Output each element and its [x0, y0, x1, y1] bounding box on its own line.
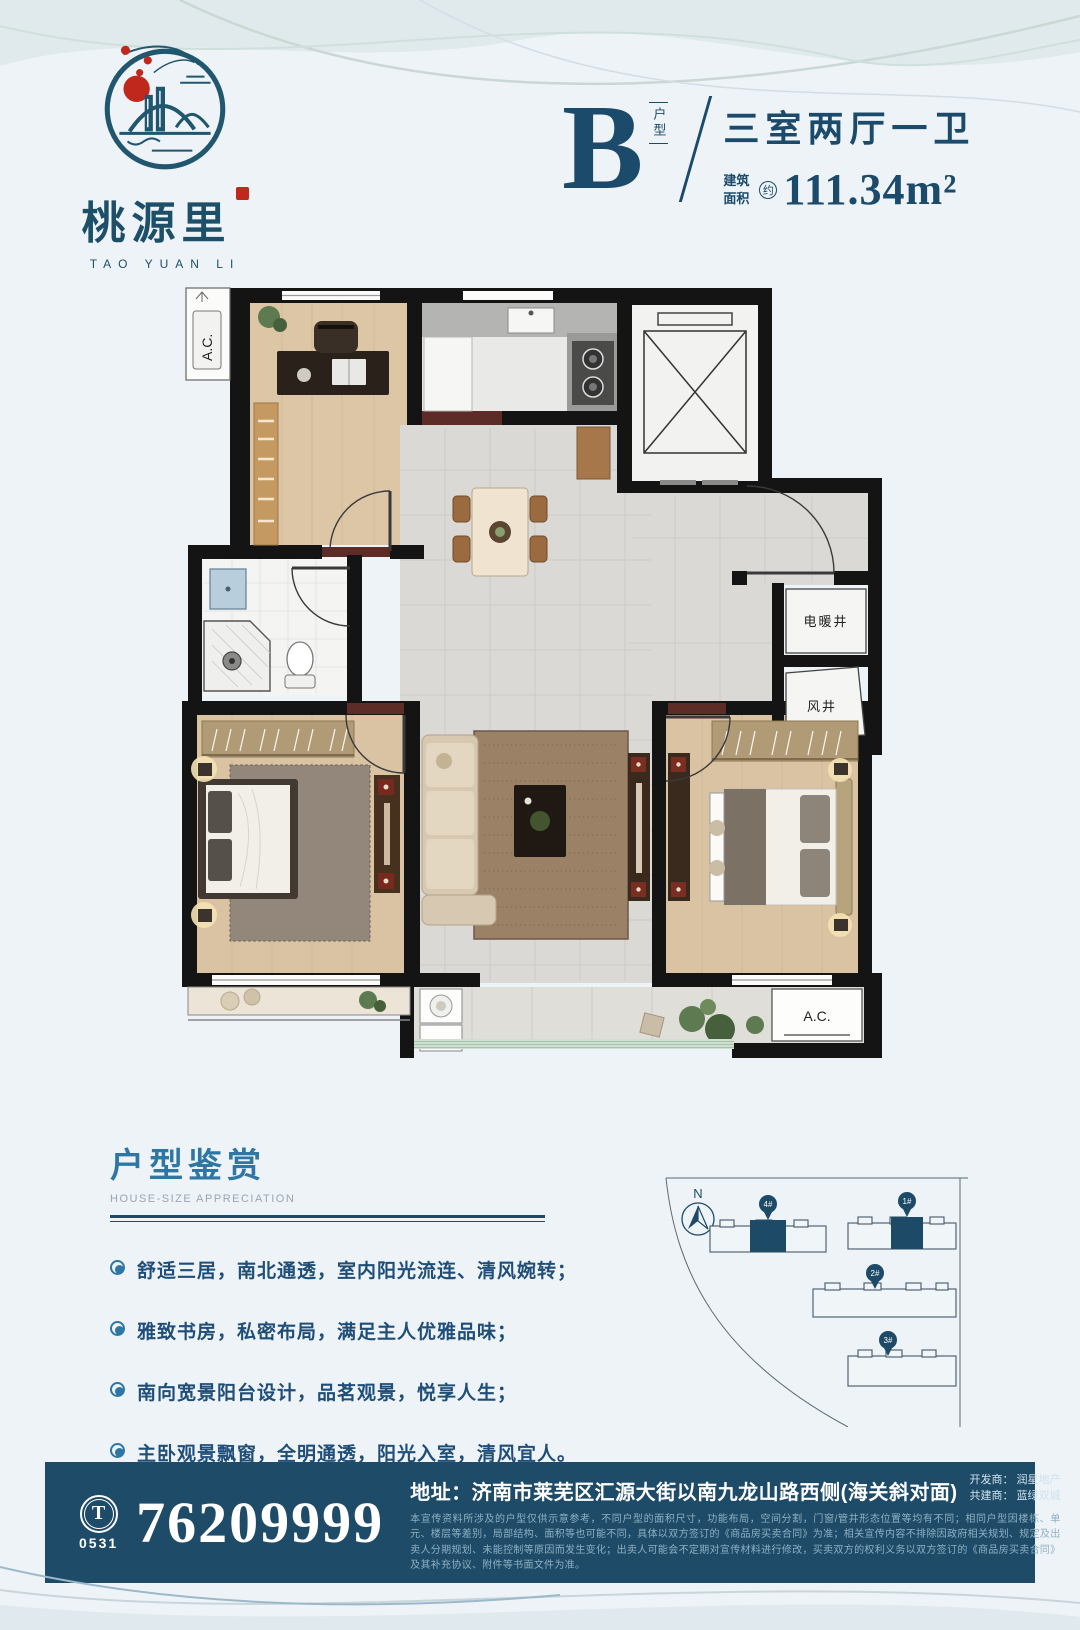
poster-page: 桃源里 TAO YUAN LI B 户型 三室两厅一卫 建筑 面积 约 111.…	[0, 0, 1080, 1630]
phone-group: T 0531 76209999	[79, 1489, 384, 1556]
pin-label: 4#	[764, 1200, 773, 1209]
co-builder-line: 共建商： 蓝绿双城	[969, 1488, 1060, 1505]
bullet-icon	[110, 1443, 125, 1458]
features-section: 户型鉴赏 HOUSE-SIZE APPRECIATION 舒适三居，南北通透，室…	[110, 1138, 630, 1466]
ac-platform-top: A.C.	[186, 288, 230, 380]
area-value: 111.34m²	[783, 164, 957, 215]
brand-name-cn: 桃源里	[82, 187, 232, 251]
bullet-icon	[110, 1382, 125, 1397]
developer-block: 开发商： 润星地产 共建商： 蓝绿双城	[969, 1472, 1060, 1505]
approx-badge: 约	[759, 181, 777, 199]
brand-name-en: TAO YUAN LI	[55, 257, 275, 271]
developer-line: 开发商： 润星地产	[969, 1472, 1060, 1489]
ac-top-label: A.C.	[199, 334, 215, 361]
landscape-circle-logo-icon	[89, 28, 241, 180]
address-value: 济南市莱芜区汇源大街以南九龙山路西侧(海关斜对面)	[472, 1482, 958, 1504]
brand-logo-block: 桃源里 TAO YUAN LI	[55, 28, 275, 271]
living-room	[422, 731, 650, 939]
compass-icon: N	[682, 1186, 714, 1235]
unit-letter: B	[562, 92, 643, 204]
unit-layout-text: 三室两厅一卫	[723, 100, 975, 152]
disclaimer-text: 本宣传资料所涉及的户型仅供示意参考，不同户型的面积尺寸，功能布局，空间分割，门窗…	[410, 1512, 1060, 1574]
pin-label: 2#	[871, 1269, 880, 1278]
air-shaft-label: 风井	[807, 699, 837, 714]
unit-header: B 户型 三室两厅一卫 建筑 面积 约 111.34m²	[562, 92, 975, 215]
footer-bar: T 0531 76209999 地址：济南市莱芜区汇源大街以南九龙山路西侧(海关…	[45, 1462, 1035, 1583]
phone-icon: T	[80, 1495, 118, 1533]
feature-text: 舒适三居，南北通透，室内阳光流连、清风婉转；	[137, 1256, 577, 1283]
feature-item: 舒适三居，南北通透，室内阳光流连、清风婉转；	[110, 1256, 630, 1283]
area-label-line1: 建筑	[723, 172, 749, 190]
address-label: 地址：	[410, 1482, 472, 1504]
feature-text: 雅致书房，私密布局，满足主人优雅品味；	[137, 1317, 517, 1344]
phone-number: 76209999	[136, 1489, 384, 1556]
feature-item: 南向宽景阳台设计，品茗观景，悦享人生；	[110, 1378, 630, 1405]
area-label-line2: 面积	[723, 190, 749, 208]
floor-plan: A.C.	[172, 283, 907, 1058]
bay-window	[188, 987, 410, 1020]
area-code: 0531	[79, 1535, 118, 1551]
north-label: N	[693, 1186, 702, 1201]
slash-divider	[679, 96, 712, 202]
address-line: 地址：济南市莱芜区汇源大街以南九龙山路西侧(海关斜对面)	[410, 1476, 957, 1505]
building-1	[848, 1217, 956, 1249]
building-2	[813, 1283, 956, 1317]
pin-label: 1#	[903, 1197, 912, 1206]
bullet-icon	[110, 1260, 125, 1275]
unit-type-label: 户型	[649, 102, 668, 144]
features-title-en: HOUSE-SIZE APPRECIATION	[110, 1193, 630, 1205]
building-3	[848, 1350, 956, 1386]
phone-icon-letter: T	[84, 1499, 114, 1529]
bullet-icon	[110, 1321, 125, 1336]
ac-bottom-label: A.C.	[803, 1008, 830, 1024]
feature-item: 雅致书房，私密布局，满足主人优雅品味；	[110, 1317, 630, 1344]
elevator-shaft	[632, 305, 758, 485]
ac-platform-bottom: A.C.	[772, 989, 862, 1041]
features-title-cn: 户型鉴赏	[110, 1138, 630, 1187]
feature-text: 南向宽景阳台设计，品茗观景，悦享人生；	[137, 1378, 517, 1405]
double-rule	[110, 1215, 545, 1222]
heating-shaft-label: 电暖井	[803, 614, 848, 629]
brand-seal-icon	[236, 187, 249, 200]
building-4	[710, 1220, 826, 1252]
pin-label: 3#	[884, 1336, 893, 1345]
site-plan: N 4# 1#	[638, 1132, 968, 1427]
